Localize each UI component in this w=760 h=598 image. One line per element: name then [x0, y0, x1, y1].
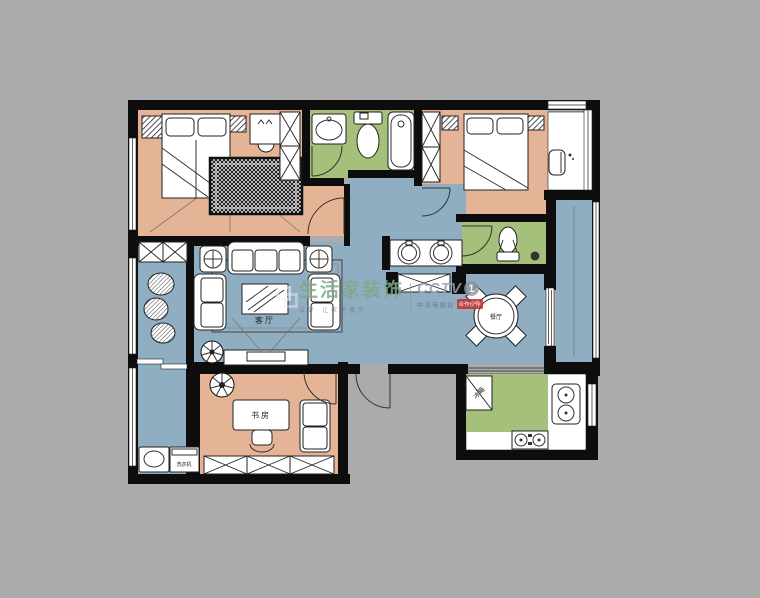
- living-room-label: 客厅: [255, 315, 275, 325]
- study-label: 书房: [251, 410, 271, 420]
- entry-door: [356, 374, 390, 408]
- landscape-stone: [151, 323, 175, 343]
- floor-plan-drawing: 客厅 餐厅 书房: [0, 0, 760, 598]
- study-wardrobe: [204, 456, 334, 474]
- living-plant: [201, 341, 223, 363]
- window-left-balcony-lower: [129, 368, 136, 466]
- nightstand-right: [230, 116, 246, 132]
- nightstand2-left: [442, 116, 458, 130]
- washer-label: 洗衣机: [176, 461, 191, 468]
- bay-window-east: [584, 110, 592, 190]
- washing-machine: 洗衣机: [170, 447, 199, 472]
- nightstand2-right: [528, 116, 544, 130]
- sofa-three-seat: [228, 242, 304, 274]
- master-bedroom-alcove-floor: [302, 186, 348, 236]
- window-kitchen: [588, 384, 596, 426]
- loveseat-right: [308, 274, 340, 330]
- bathroom1-sink: [312, 114, 346, 144]
- vanity-counter: [390, 240, 462, 266]
- master-wardrobe: [280, 112, 300, 180]
- floor-plan: 客厅 餐厅 书房: [0, 0, 760, 598]
- study-desk: 书房: [233, 400, 289, 430]
- laundry-sink: [139, 447, 169, 472]
- stove: [512, 431, 548, 449]
- kitchen-sink: [552, 384, 580, 424]
- bathroom2-toilet: [497, 227, 519, 261]
- balcony-cabinet: [139, 242, 187, 262]
- study-bench: [300, 400, 330, 452]
- floor-drain: [531, 252, 540, 261]
- second-bedroom-wardrobe: [422, 112, 440, 182]
- coffee-table: [242, 284, 288, 314]
- window-left-balcony-upper: [129, 258, 136, 354]
- entry-cabinet: [398, 274, 450, 292]
- bay-window-top: [548, 101, 586, 109]
- side-table-right: [306, 246, 332, 272]
- bathtub: [388, 112, 414, 170]
- kitchen-slider: [466, 368, 548, 371]
- side-table-left: [200, 246, 226, 272]
- dining-set: 餐厅: [466, 286, 526, 346]
- loveseat-left: [194, 274, 226, 330]
- fridge: 冰箱: [466, 376, 492, 410]
- study-plant: [210, 372, 234, 397]
- window-left-bedroom: [129, 138, 136, 230]
- window-right-balcony: [593, 202, 599, 358]
- landscape-stone: [148, 273, 174, 295]
- dining-label: 餐厅: [490, 313, 502, 321]
- landscape-stone: [144, 298, 168, 320]
- second-bed: [464, 114, 528, 190]
